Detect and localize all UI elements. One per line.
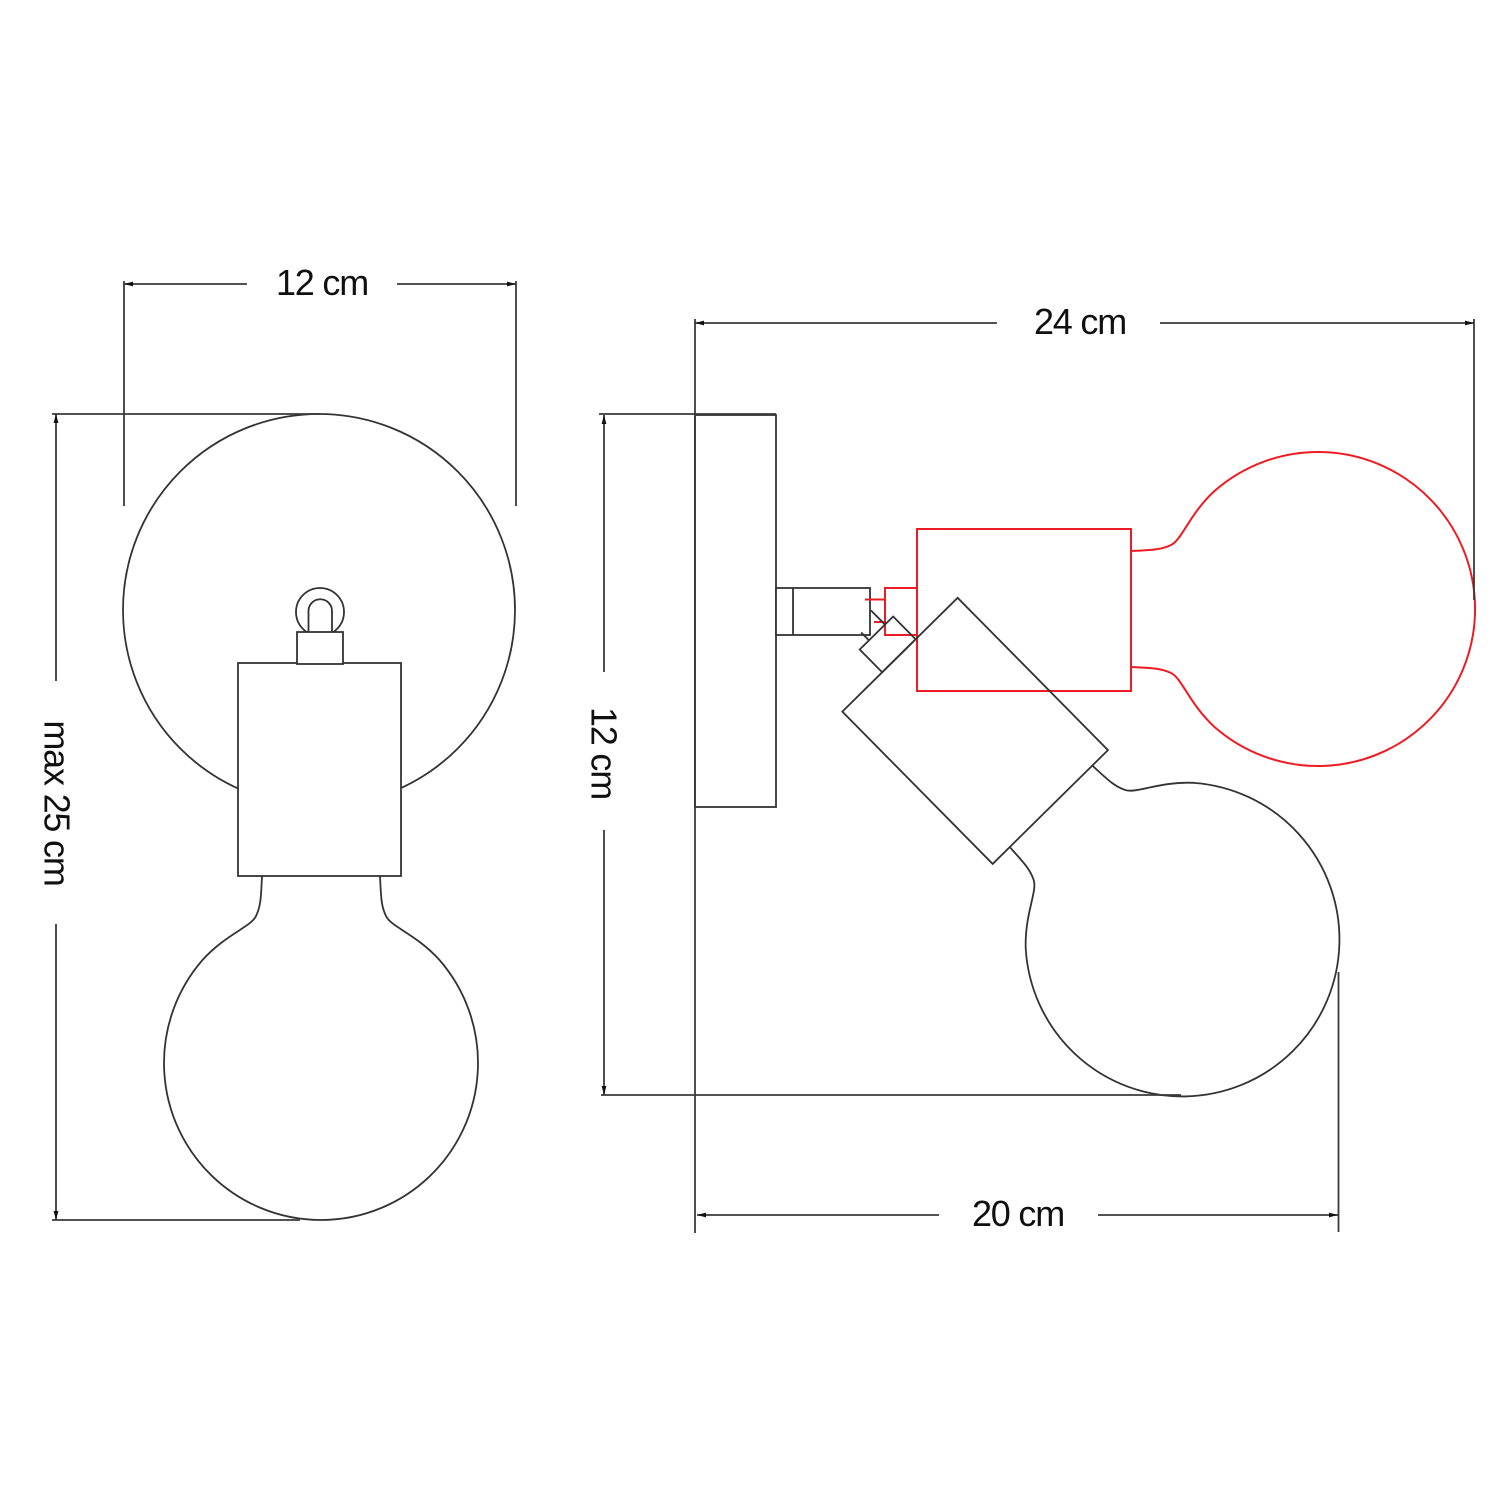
svg-text:12 cm: 12 cm	[276, 262, 368, 303]
svg-text:max 25 cm: max 25 cm	[37, 720, 78, 885]
svg-text:20 cm: 20 cm	[972, 1193, 1064, 1234]
svg-text:12 cm: 12 cm	[584, 707, 625, 799]
svg-text:24 cm: 24 cm	[1034, 301, 1126, 342]
